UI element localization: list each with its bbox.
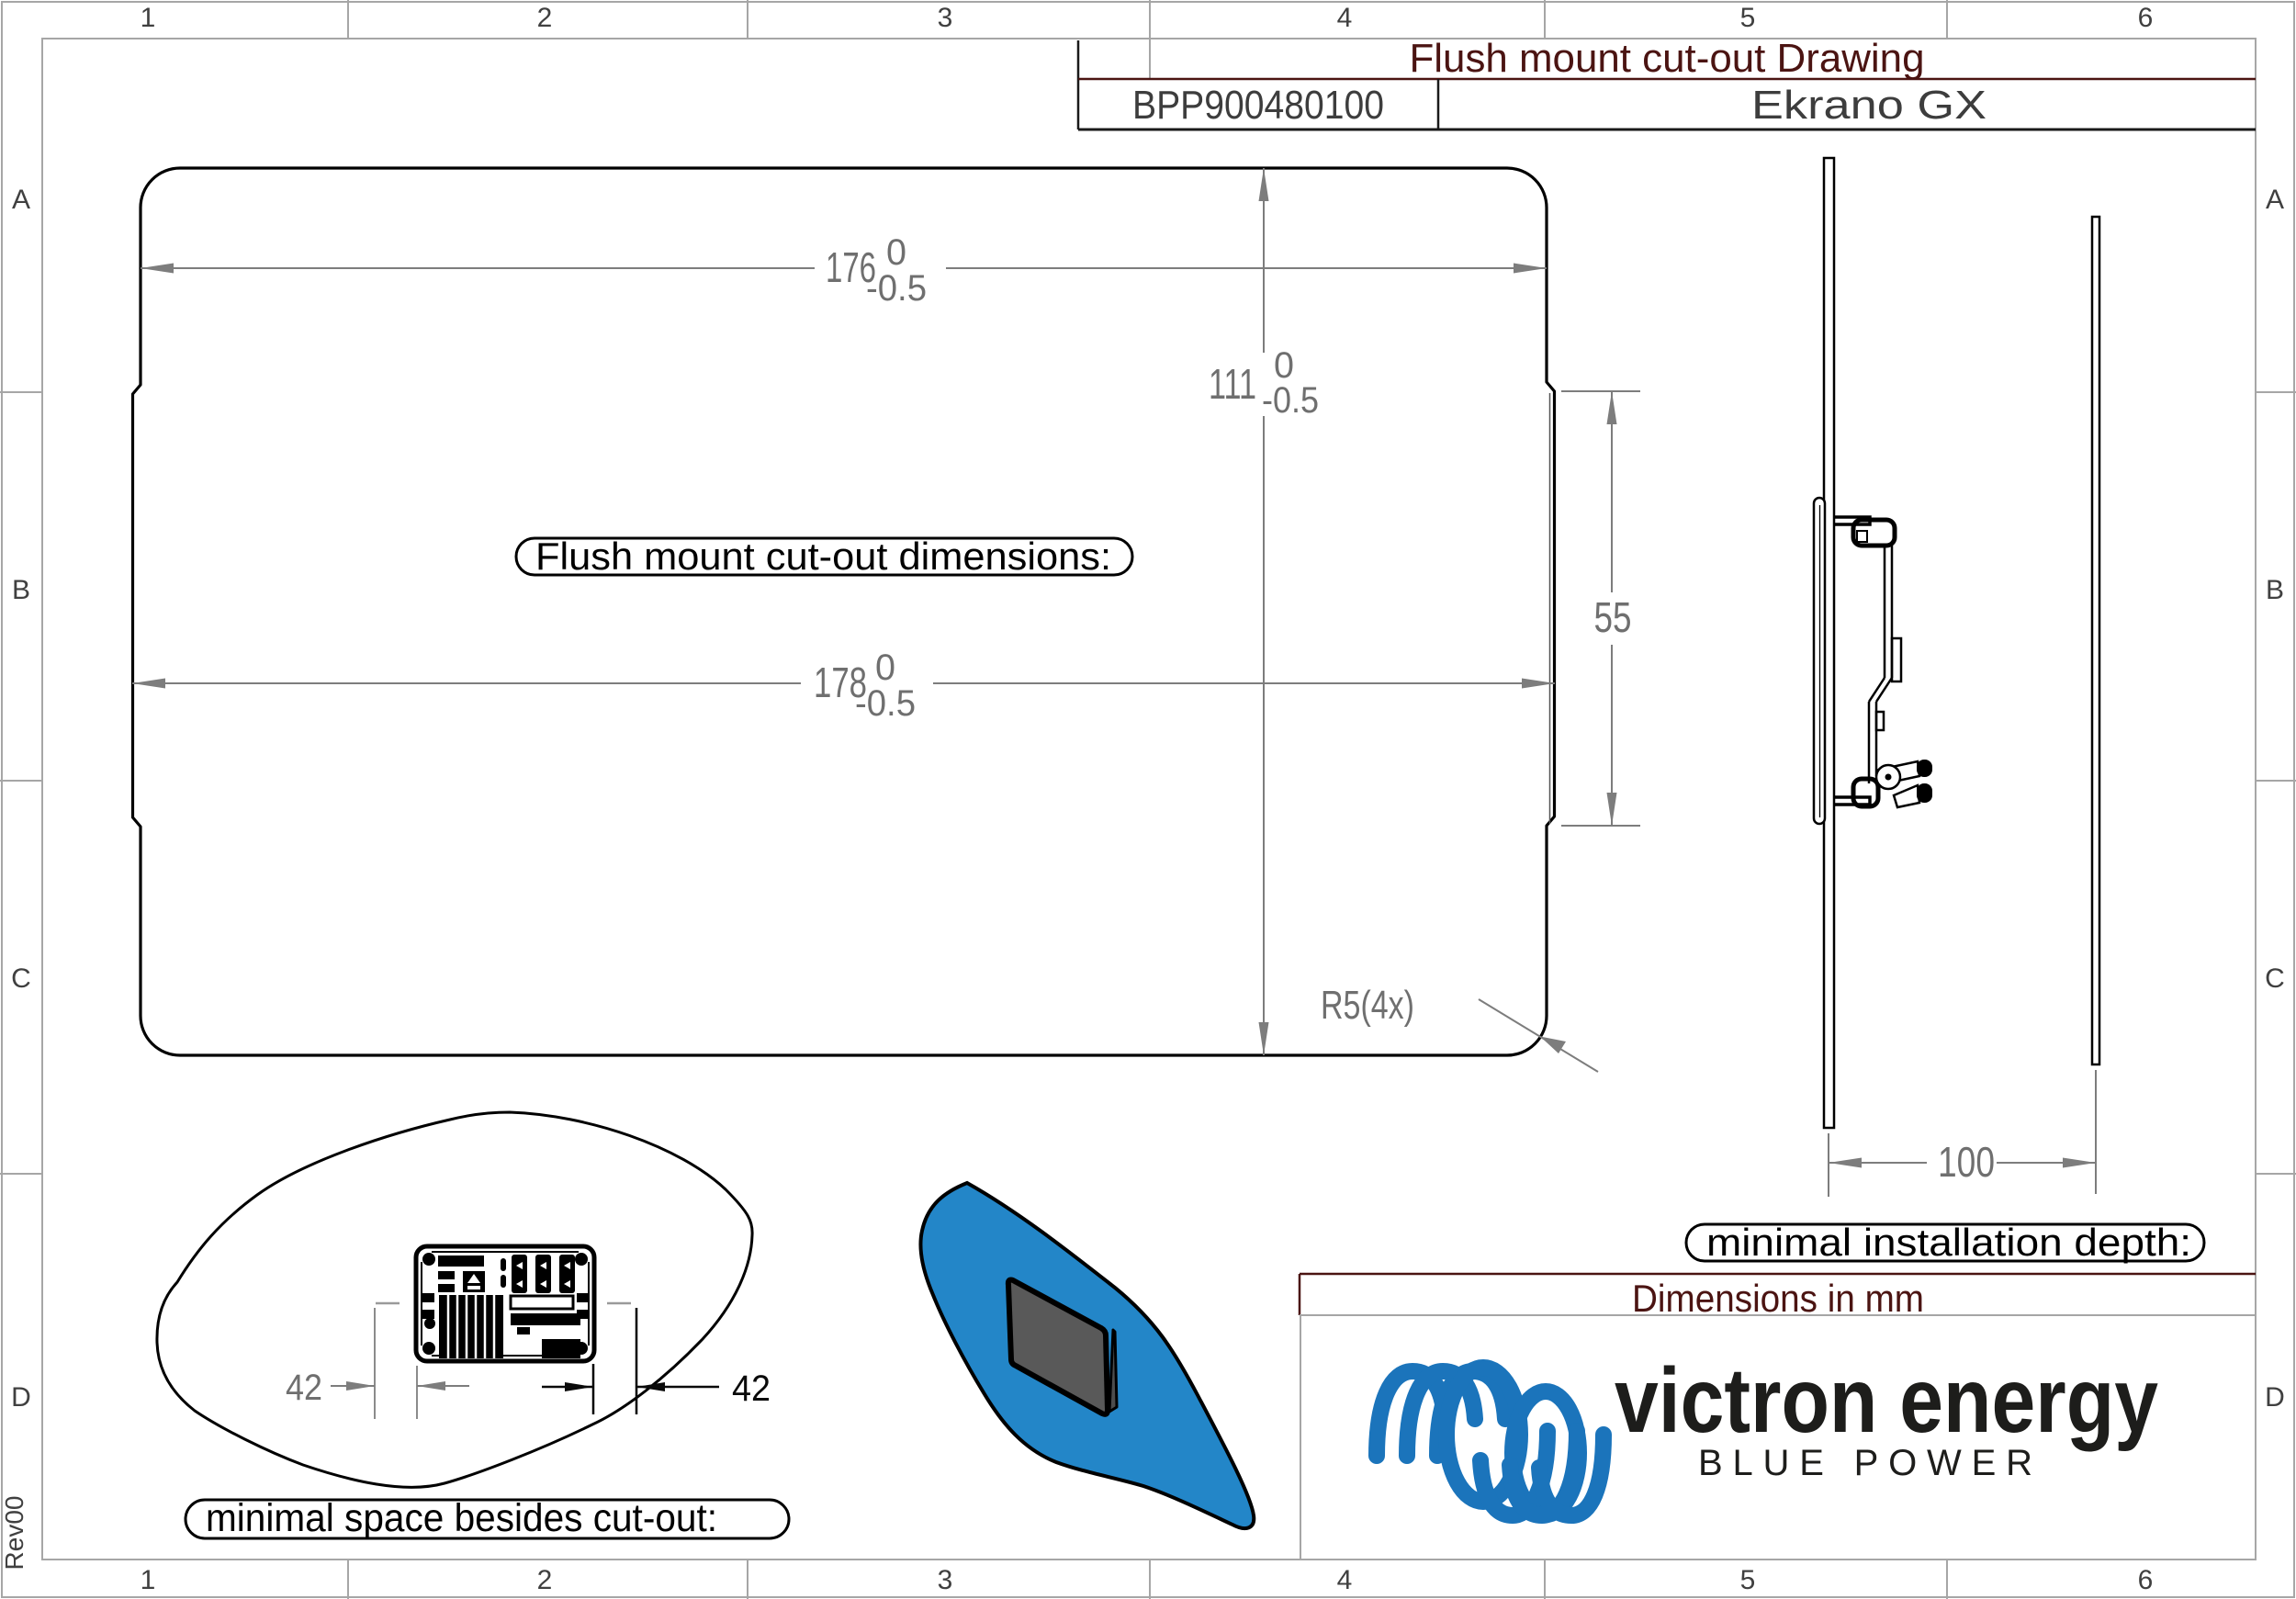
svg-text:42: 42 xyxy=(732,1368,771,1409)
svg-text:6: 6 xyxy=(2138,1565,2154,1595)
svg-text:Flush mount cut-out Drawing: Flush mount cut-out Drawing xyxy=(1410,36,1925,81)
svg-text:BPP900480100: BPP900480100 xyxy=(1132,83,1384,128)
svg-text:5: 5 xyxy=(1740,1565,1756,1595)
svg-text:B: B xyxy=(12,575,30,605)
svg-text:-0.5: -0.5 xyxy=(1262,380,1319,421)
svg-text:2: 2 xyxy=(537,1565,553,1595)
svg-text:4: 4 xyxy=(1337,1565,1353,1595)
svg-text:-0.5: -0.5 xyxy=(855,683,916,724)
svg-text:Rev00: Rev00 xyxy=(0,1496,28,1571)
svg-text:C: C xyxy=(2265,963,2285,994)
svg-text:Flush mount cut-out dimensions: Flush mount cut-out dimensions: xyxy=(535,535,1111,578)
svg-text:4: 4 xyxy=(1337,3,1353,33)
svg-text:victron energy: victron energy xyxy=(1615,1349,2158,1452)
svg-text:2: 2 xyxy=(537,3,553,33)
svg-text:BLUE POWER: BLUE POWER xyxy=(1698,1443,2032,1483)
svg-text:100: 100 xyxy=(1938,1138,1995,1186)
svg-text:-0.5: -0.5 xyxy=(866,268,927,309)
svg-text:minimal installation depth:: minimal installation depth: xyxy=(1706,1221,2191,1264)
svg-text:3: 3 xyxy=(938,3,953,33)
svg-text:R5(4x): R5(4x) xyxy=(1321,983,1414,1028)
svg-text:A: A xyxy=(12,185,30,215)
svg-text:42: 42 xyxy=(286,1368,322,1408)
svg-text:A: A xyxy=(2266,185,2284,215)
svg-text:minimal space besides cut-out:: minimal space besides cut-out: xyxy=(206,1496,717,1540)
svg-text:0: 0 xyxy=(886,232,906,273)
svg-text:Ekrano GX: Ekrano GX xyxy=(1751,83,1986,128)
svg-text:1: 1 xyxy=(141,3,156,33)
svg-text:6: 6 xyxy=(2138,3,2154,33)
svg-text:0: 0 xyxy=(875,647,895,688)
svg-text:Dimensions in mm: Dimensions in mm xyxy=(1632,1277,1924,1320)
svg-text:D: D xyxy=(11,1382,31,1413)
svg-text:5: 5 xyxy=(1740,3,1756,33)
svg-text:3: 3 xyxy=(938,1565,953,1595)
svg-text:D: D xyxy=(2265,1382,2285,1413)
svg-text:55: 55 xyxy=(1594,593,1632,641)
svg-text:111: 111 xyxy=(1209,360,1256,408)
svg-text:1: 1 xyxy=(141,1565,156,1595)
svg-text:C: C xyxy=(11,963,31,994)
svg-text:B: B xyxy=(2266,575,2284,605)
